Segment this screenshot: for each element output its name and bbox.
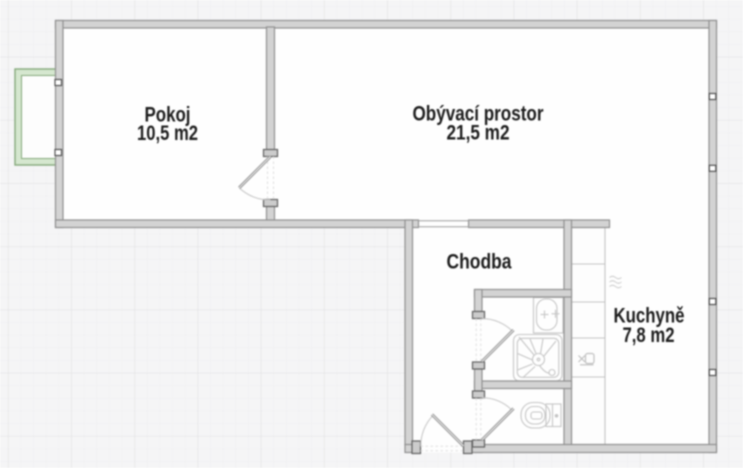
svg-text:21,5 m2: 21,5 m2 — [447, 121, 510, 145]
svg-text:Chodba: Chodba — [447, 250, 513, 274]
svg-text:10,5 m2: 10,5 m2 — [137, 121, 198, 145]
svg-text:7,8 m2: 7,8 m2 — [623, 323, 675, 347]
